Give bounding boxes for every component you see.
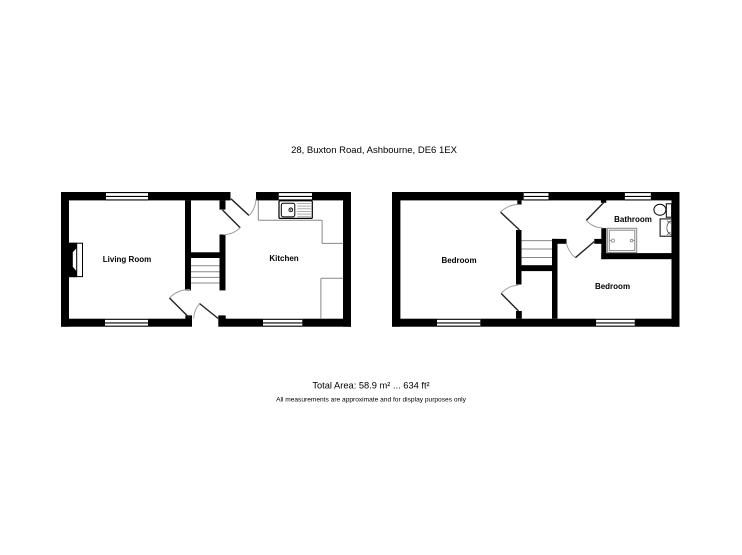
svg-text:Kitchen: Kitchen <box>269 254 298 263</box>
svg-text:Total Area: 58.9 m² ... 634 ft: Total Area: 58.9 m² ... 634 ft² <box>312 380 429 390</box>
svg-text:Bathroom: Bathroom <box>614 215 652 224</box>
svg-text:28, Buxton Road, Ashbourne, DE: 28, Buxton Road, Ashbourne, DE6 1EX <box>291 145 457 156</box>
svg-text:Bedroom: Bedroom <box>595 282 630 291</box>
svg-text:All measurements are approxima: All measurements are approximate and for… <box>276 397 467 404</box>
svg-text:Bedroom: Bedroom <box>441 256 476 265</box>
svg-text:Living Room: Living Room <box>103 255 151 264</box>
